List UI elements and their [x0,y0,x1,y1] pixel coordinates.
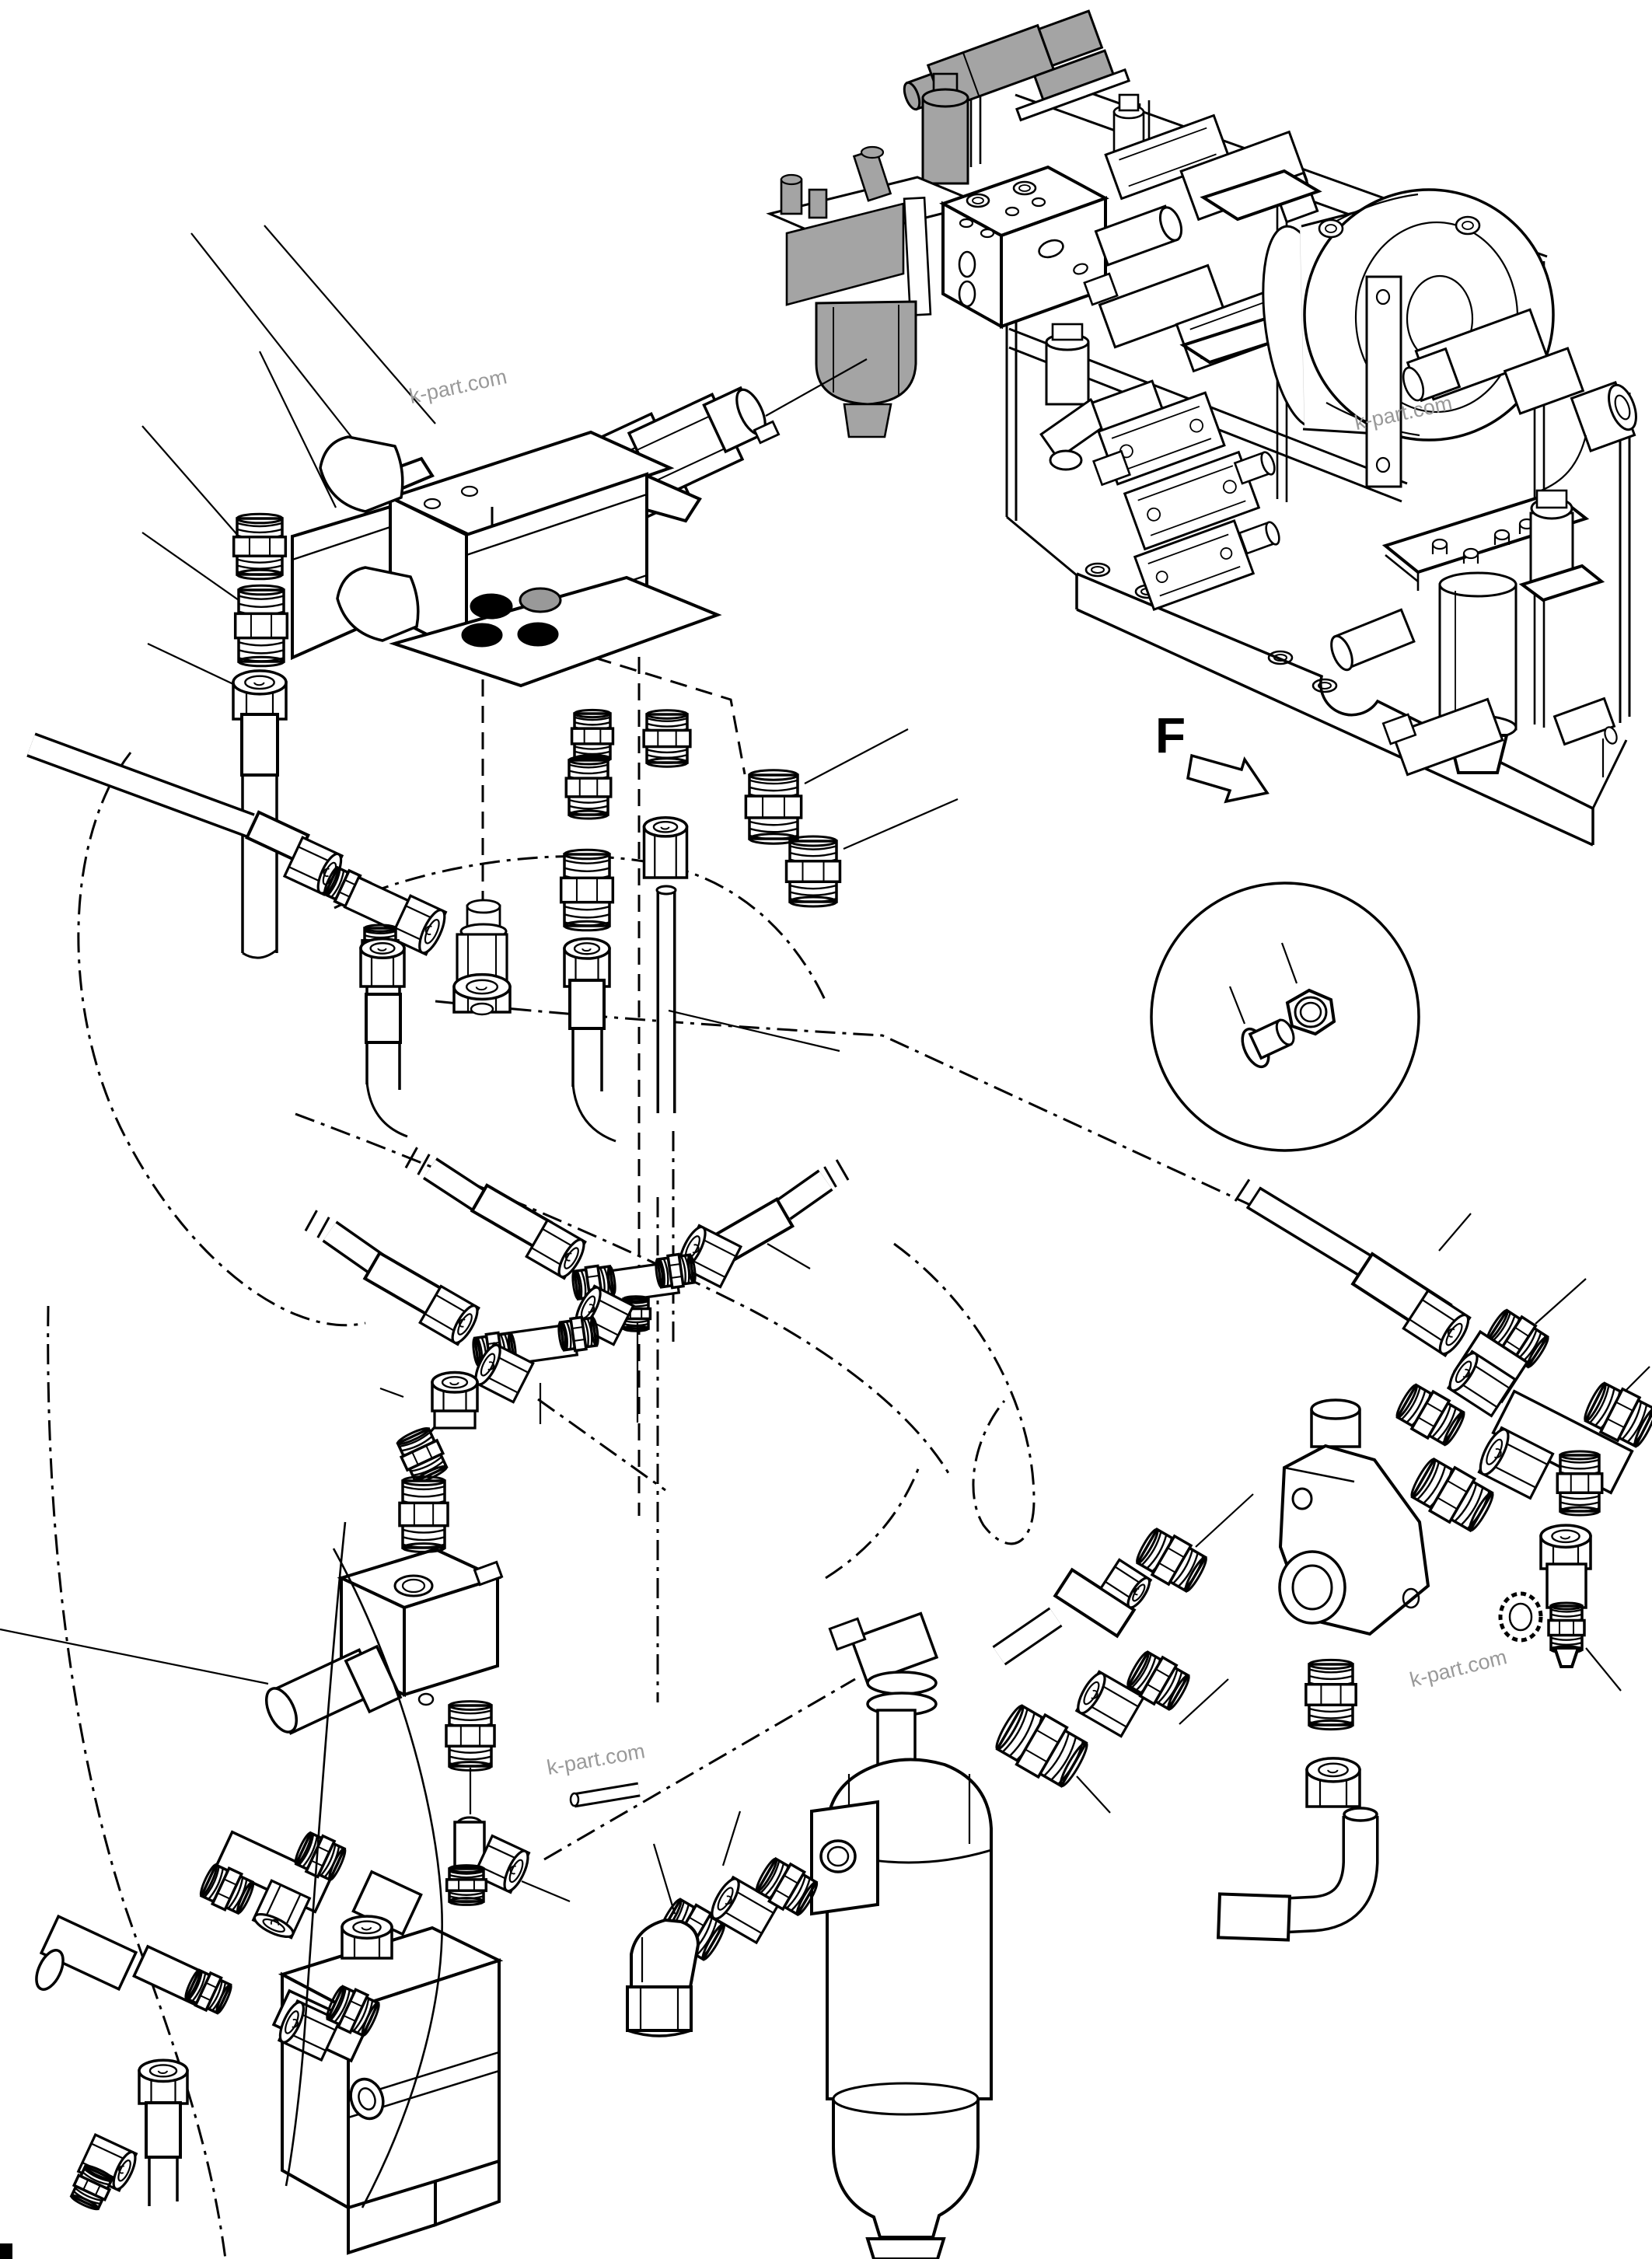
svg-text:F: F [1155,707,1186,763]
